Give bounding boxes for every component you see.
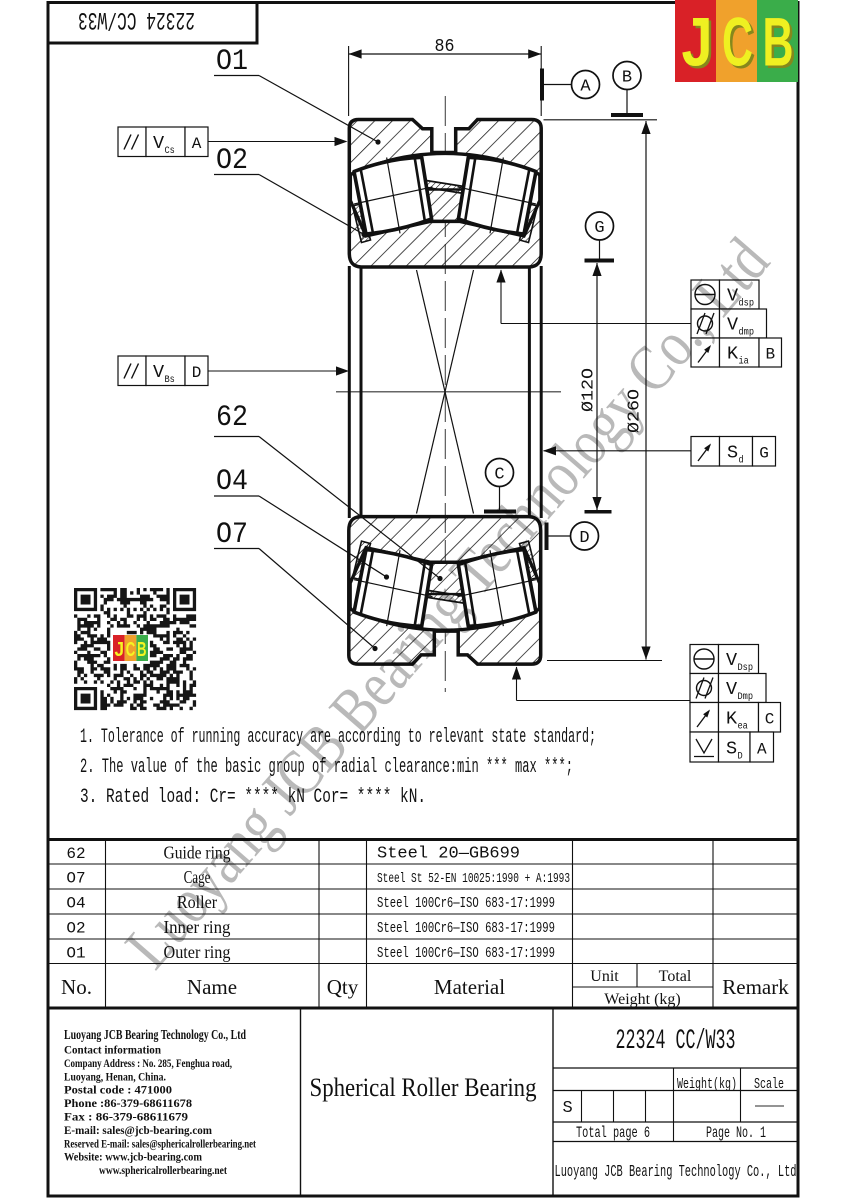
svg-text:Contact information: Contact information <box>64 1045 162 1057</box>
svg-text:C: C <box>722 4 753 81</box>
svg-text:Weight (kg): Weight (kg) <box>604 991 680 1008</box>
svg-text:ia: ia <box>738 356 748 368</box>
svg-text:Page No. 1: Page No. 1 <box>706 1124 766 1142</box>
svg-text:Total page 6: Total page 6 <box>576 1124 650 1142</box>
svg-text:O4: O4 <box>216 465 248 499</box>
svg-text:D: D <box>192 364 202 382</box>
svg-text:Qty: Qty <box>327 975 359 999</box>
svg-text:D: D <box>579 529 589 548</box>
svg-text:Website: www.jcb-bearing.com: Website: www.jcb-bearing.com <box>64 1152 202 1164</box>
svg-text:Luoyang JCB Bearing Technology: Luoyang JCB Bearing Technology Co., Ltd <box>64 1027 246 1042</box>
svg-text:dmp: dmp <box>738 327 754 339</box>
svg-text:E-mail: sales@jcb-bearing.com: E-mail: sales@jcb-bearing.com <box>64 1125 212 1137</box>
svg-text:Company Address : No. 285, Fen: Company Address : No. 285, Fenghua road, <box>64 1058 232 1070</box>
svg-text:Steel St 52-EN 10025:1990 + A:: Steel St 52-EN 10025:1990 + A:1993 <box>377 872 570 887</box>
svg-text:d: d <box>738 455 743 467</box>
svg-text:O2: O2 <box>66 920 85 938</box>
svg-text:A: A <box>580 78 591 97</box>
svg-text:Reserved E-mail: sales@spheric: Reserved E-mail: sales@sphericalrollerbe… <box>64 1138 256 1150</box>
svg-text:V: V <box>153 133 164 154</box>
svg-text:Name: Name <box>187 975 237 999</box>
svg-text:O1: O1 <box>66 944 85 962</box>
svg-text:K: K <box>726 709 738 730</box>
svg-text:G: G <box>594 219 604 238</box>
svg-text:Steel 20—GB699: Steel 20—GB699 <box>377 844 520 863</box>
svg-text:K: K <box>727 344 739 365</box>
svg-text:B: B <box>765 346 775 364</box>
svg-text:C: C <box>126 639 136 661</box>
svg-text:C: C <box>765 711 775 729</box>
svg-text:O4: O4 <box>66 895 85 913</box>
svg-text:No.: No. <box>61 975 92 999</box>
svg-text:V: V <box>153 362 164 383</box>
svg-text:www.sphericalrollerbearing.net: www.sphericalrollerbearing.net <box>99 1165 227 1177</box>
svg-text:B: B <box>137 639 147 661</box>
svg-text:A: A <box>757 741 767 759</box>
svg-text:Dmp: Dmp <box>737 692 753 703</box>
svg-text:J: J <box>114 639 124 661</box>
svg-text:Steel 100Cr6—ISO 683-17:1999: Steel 100Cr6—ISO 683-17:1999 <box>377 895 555 912</box>
svg-text:D: D <box>737 752 742 763</box>
svg-text:Phone :86-379-68611678: Phone :86-379-68611678 <box>64 1098 192 1110</box>
svg-text:G: G <box>759 445 769 463</box>
svg-text:Cs: Cs <box>164 146 174 157</box>
svg-text:22324 CC/W33: 22324 CC/W33 <box>78 5 195 34</box>
svg-text:O1: O1 <box>216 45 248 79</box>
svg-text:86: 86 <box>435 37 455 57</box>
svg-text:Luoyang JCB Bearing Technology: Luoyang JCB Bearing Technology Co., Ltd <box>555 1163 797 1182</box>
svg-text:O7: O7 <box>216 518 248 552</box>
svg-text:B: B <box>622 69 632 88</box>
svg-text:Steel 100Cr6—ISO 683-17:1999: Steel 100Cr6—ISO 683-17:1999 <box>377 945 555 962</box>
svg-text:Steel 100Cr6—ISO 683-17:1999: Steel 100Cr6—ISO 683-17:1999 <box>377 920 555 937</box>
svg-text:Unit: Unit <box>590 968 619 985</box>
svg-text:Remark: Remark <box>722 975 789 999</box>
svg-text:ea: ea <box>737 722 747 733</box>
svg-text:J: J <box>682 4 713 81</box>
svg-text:Spherical Roller Bearing: Spherical Roller Bearing <box>310 1073 537 1102</box>
svg-text:C: C <box>494 466 504 485</box>
svg-text:Bs: Bs <box>164 375 174 386</box>
svg-text:O2: O2 <box>216 144 248 178</box>
svg-text:Total: Total <box>659 968 692 985</box>
svg-text:62: 62 <box>216 401 248 435</box>
svg-text:S: S <box>726 739 737 760</box>
svg-text:Luoyang, Henan, China.: Luoyang, Henan, China. <box>64 1071 166 1083</box>
svg-text:Dsp: Dsp <box>737 663 753 674</box>
svg-text:B: B <box>763 4 794 81</box>
svg-text:V: V <box>726 679 737 700</box>
svg-text:62: 62 <box>66 845 85 863</box>
svg-text:A: A <box>192 135 202 153</box>
svg-text:22324 CC/W33: 22324 CC/W33 <box>616 1026 736 1057</box>
svg-text:O7: O7 <box>66 870 85 888</box>
svg-text:V: V <box>726 650 737 671</box>
svg-text:Postal code : 471000: Postal code : 471000 <box>64 1085 172 1097</box>
svg-text:Material: Material <box>434 975 505 999</box>
svg-text:Fax : 86-379-68611679: Fax : 86-379-68611679 <box>64 1112 188 1124</box>
svg-text:S: S <box>727 443 738 464</box>
svg-text:S: S <box>563 1099 573 1118</box>
